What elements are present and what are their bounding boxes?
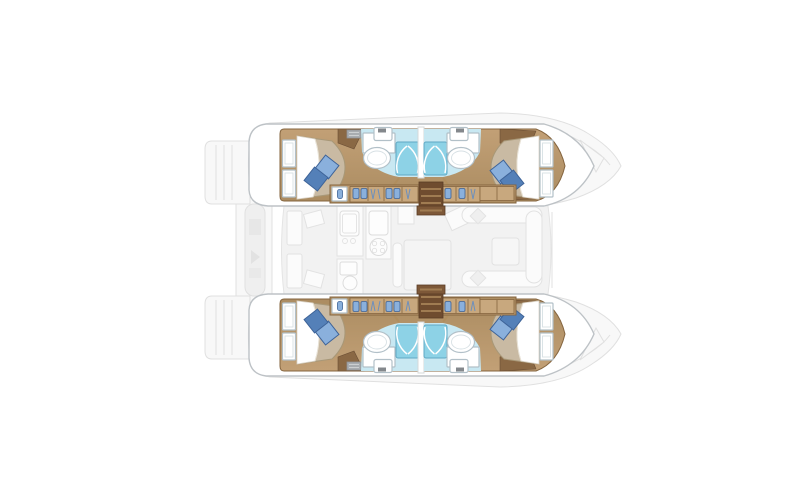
vent-grille <box>347 130 361 138</box>
shower-stall <box>424 142 447 175</box>
galley-appliance <box>340 262 357 275</box>
bottle-icon <box>338 190 343 199</box>
toilet-tank <box>456 129 464 133</box>
transom-platform <box>205 141 250 204</box>
shelf-unit <box>283 140 296 167</box>
starboard-hull <box>205 285 621 387</box>
port-hull <box>205 113 621 215</box>
tender-seat <box>249 268 261 278</box>
bridgedeck-salon <box>282 203 553 294</box>
clothes-icon <box>361 189 367 199</box>
galley-prep-sink <box>369 211 388 235</box>
shelf-unit <box>540 170 553 197</box>
shower-stall <box>396 142 419 175</box>
bathroom-divider-wall <box>418 127 424 178</box>
clothes-icon <box>459 189 465 199</box>
toilet-tank <box>378 129 386 133</box>
companionway-stairs <box>417 182 445 215</box>
salon-table <box>404 240 451 290</box>
shelf-unit <box>540 140 553 167</box>
shelf-unit <box>283 170 296 197</box>
tender-console <box>249 219 261 235</box>
salon-cabinet <box>398 206 414 224</box>
clothes-icon <box>445 189 451 199</box>
clothes-icon <box>394 189 400 199</box>
clothes-icon <box>353 189 359 199</box>
galley-round-sink <box>343 276 357 290</box>
salon-bench <box>393 243 402 287</box>
tender-outline <box>245 204 265 296</box>
clothes-icon <box>386 189 392 199</box>
cockpit-table <box>492 238 519 265</box>
floorplan-drawing <box>0 0 800 500</box>
galley-stove <box>370 239 387 256</box>
catamaran-floorplan <box>0 0 800 500</box>
cockpit-bench-forward <box>526 211 542 283</box>
salon-bench-aft-top <box>287 211 302 245</box>
salon-bench-aft-bottom <box>287 254 302 288</box>
